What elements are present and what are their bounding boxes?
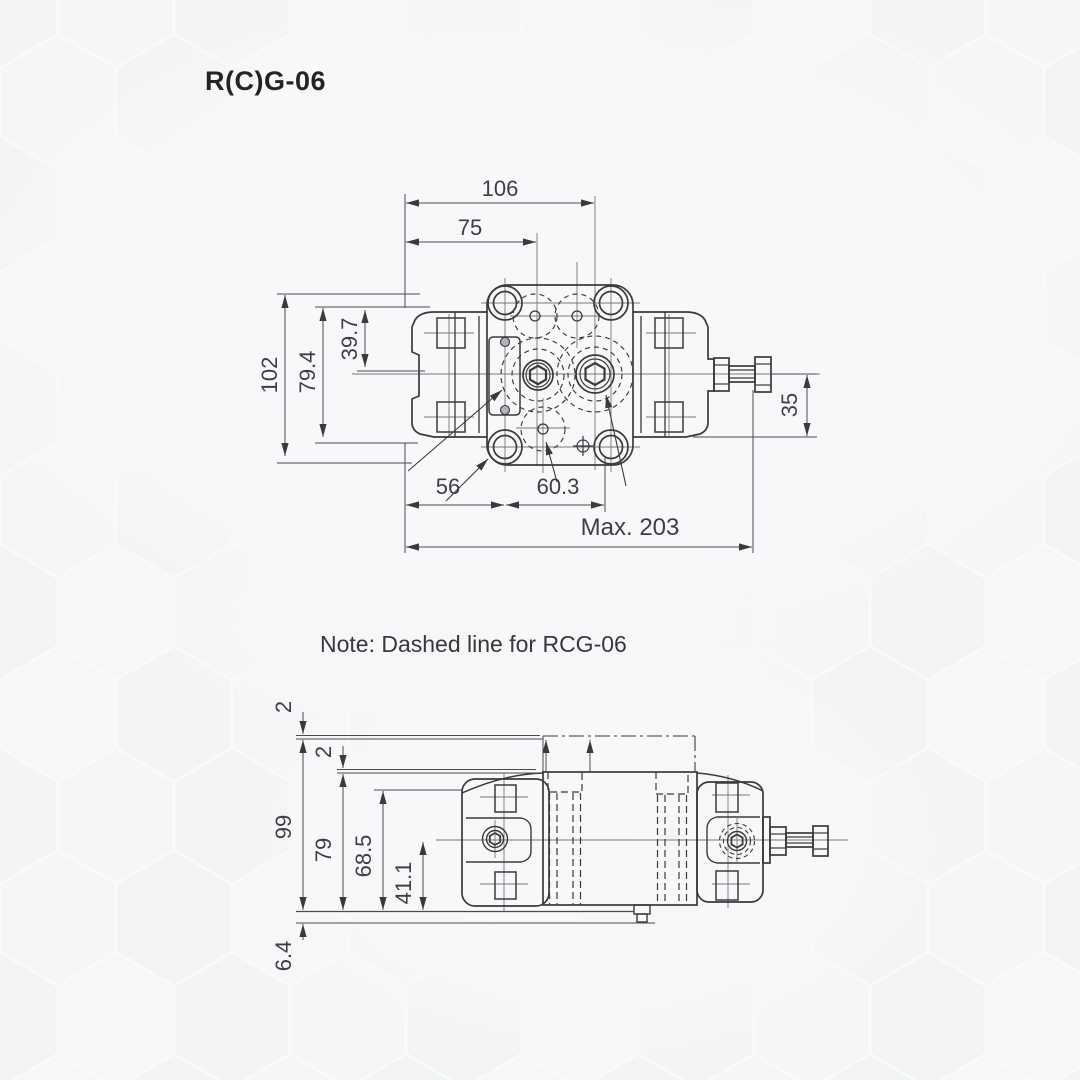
dim-106-label: 106	[482, 176, 519, 201]
dim-2-top-label: 2	[271, 701, 296, 713]
dim-2-mid-label: 2	[311, 746, 336, 758]
dim-79-label: 79	[311, 838, 336, 862]
dim-56-label: 56	[436, 474, 460, 499]
dim-max203-label: Max. 203	[581, 514, 680, 541]
dim-99-label: 99	[271, 815, 296, 839]
dim-6_4-label: 6.4	[271, 941, 296, 972]
dim-60_3-label: 60.3	[537, 474, 580, 499]
drawing-note: Note: Dashed line for RCG-06	[320, 631, 627, 657]
dim-75-label: 75	[458, 215, 482, 240]
dim-39_7-label: 39.7	[337, 318, 362, 361]
dim-79_4-label: 79.4	[295, 351, 320, 394]
dim-41_1-label: 41.1	[391, 862, 416, 905]
drawing-title: R(C)G-06	[205, 66, 326, 96]
technical-drawing-page: R(C)G-06	[0, 0, 1080, 1080]
dim-68_5-label: 68.5	[351, 835, 376, 878]
valve-drawing-canvas: R(C)G-06	[0, 0, 1080, 1080]
dim-102-label: 102	[257, 357, 282, 394]
dim-35-label: 35	[777, 393, 802, 417]
